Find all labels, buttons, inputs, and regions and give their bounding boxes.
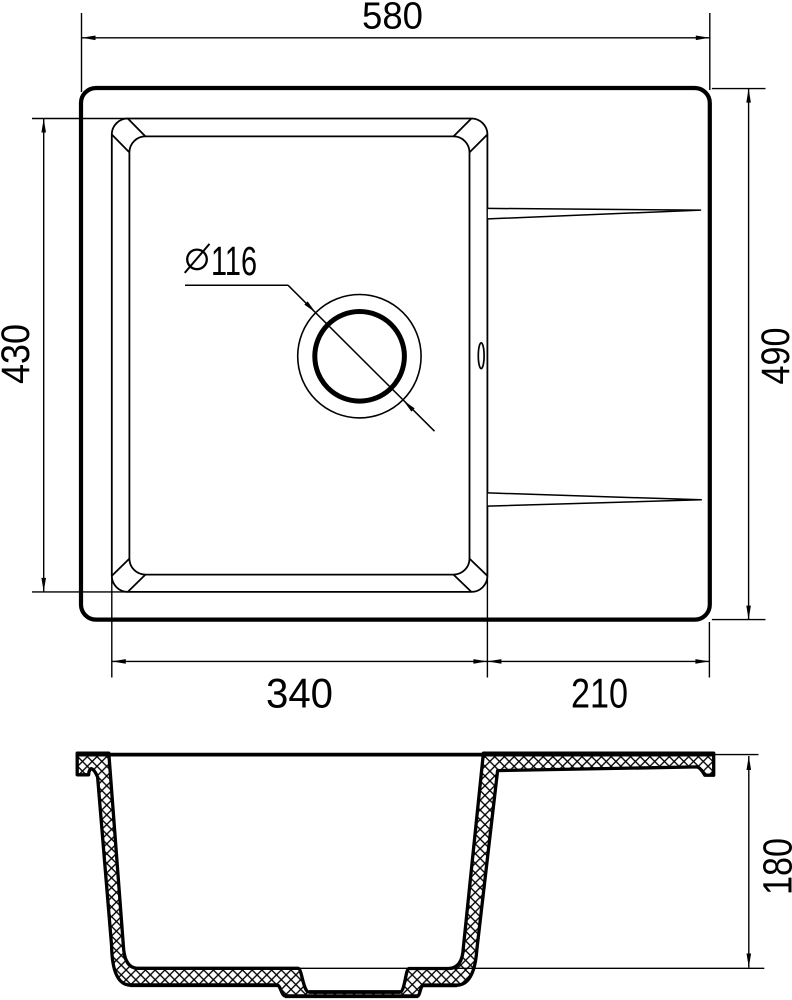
- svg-text:340: 340: [266, 670, 333, 717]
- svg-text:430: 430: [0, 324, 38, 384]
- svg-text:210: 210: [571, 670, 628, 717]
- svg-text:580: 580: [362, 0, 423, 38]
- svg-text:490: 490: [754, 328, 792, 385]
- svg-text:116: 116: [211, 238, 257, 284]
- svg-text:180: 180: [755, 838, 792, 895]
